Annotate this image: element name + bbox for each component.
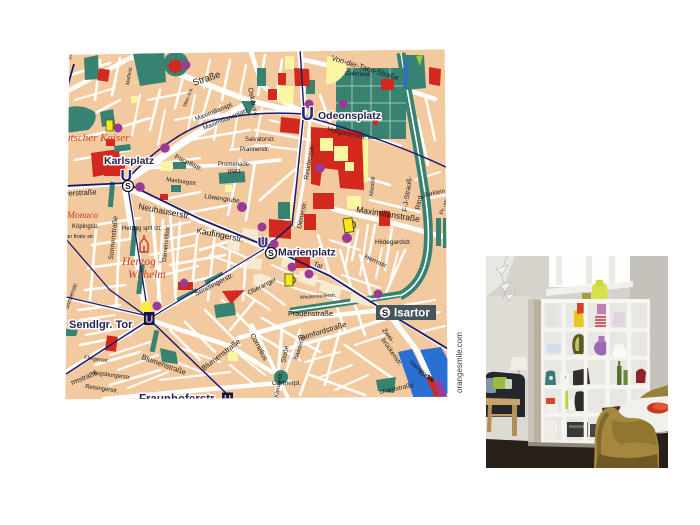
svg-text:Wilhelm: Wilhelm: [128, 269, 166, 281]
svg-text:Herzog spit str.: Herzog spit str.: [122, 226, 162, 232]
svg-text:Odeonsplatz: Odeonsplatz: [318, 110, 381, 122]
svg-text:S: S: [268, 248, 274, 258]
svg-text:Isartor: Isartor: [394, 308, 430, 320]
svg-text:Frauenstraße: Frauenstraße: [288, 309, 333, 318]
svg-text:Karlsplatz: Karlsplatz: [104, 155, 154, 167]
svg-text:Salvatorstr.: Salvatorstr.: [245, 137, 275, 143]
svg-text:orangesmile.com: orangesmile.com: [455, 332, 464, 393]
svg-text:yerstraße: yerstraße: [65, 187, 97, 198]
svg-text:S: S: [382, 308, 388, 319]
svg-text:Köpingstr.: Köpingstr.: [72, 224, 99, 230]
svg-text:utscher Kaiser: utscher Kaiser: [65, 132, 130, 144]
svg-text:Hildegardstr.: Hildegardstr.: [375, 239, 412, 246]
svg-text:Monaco: Monaco: [66, 211, 98, 221]
svg-text:Herzog -: Herzog -: [121, 256, 163, 268]
svg-text:Promenade-: Promenade-: [218, 162, 251, 168]
svg-text:U: U: [301, 104, 314, 124]
svg-text:S: S: [125, 181, 131, 191]
svg-text:Sendlgr. Tor: Sendlgr. Tor: [69, 319, 133, 331]
svg-text:U: U: [145, 314, 153, 326]
svg-text:platz: platz: [228, 169, 241, 175]
svg-text:Marienplatz: Marienplatz: [278, 247, 336, 259]
svg-text:Prannerstr.: Prannerstr.: [240, 147, 270, 153]
svg-text:an thale str.: an thale str.: [66, 234, 95, 240]
